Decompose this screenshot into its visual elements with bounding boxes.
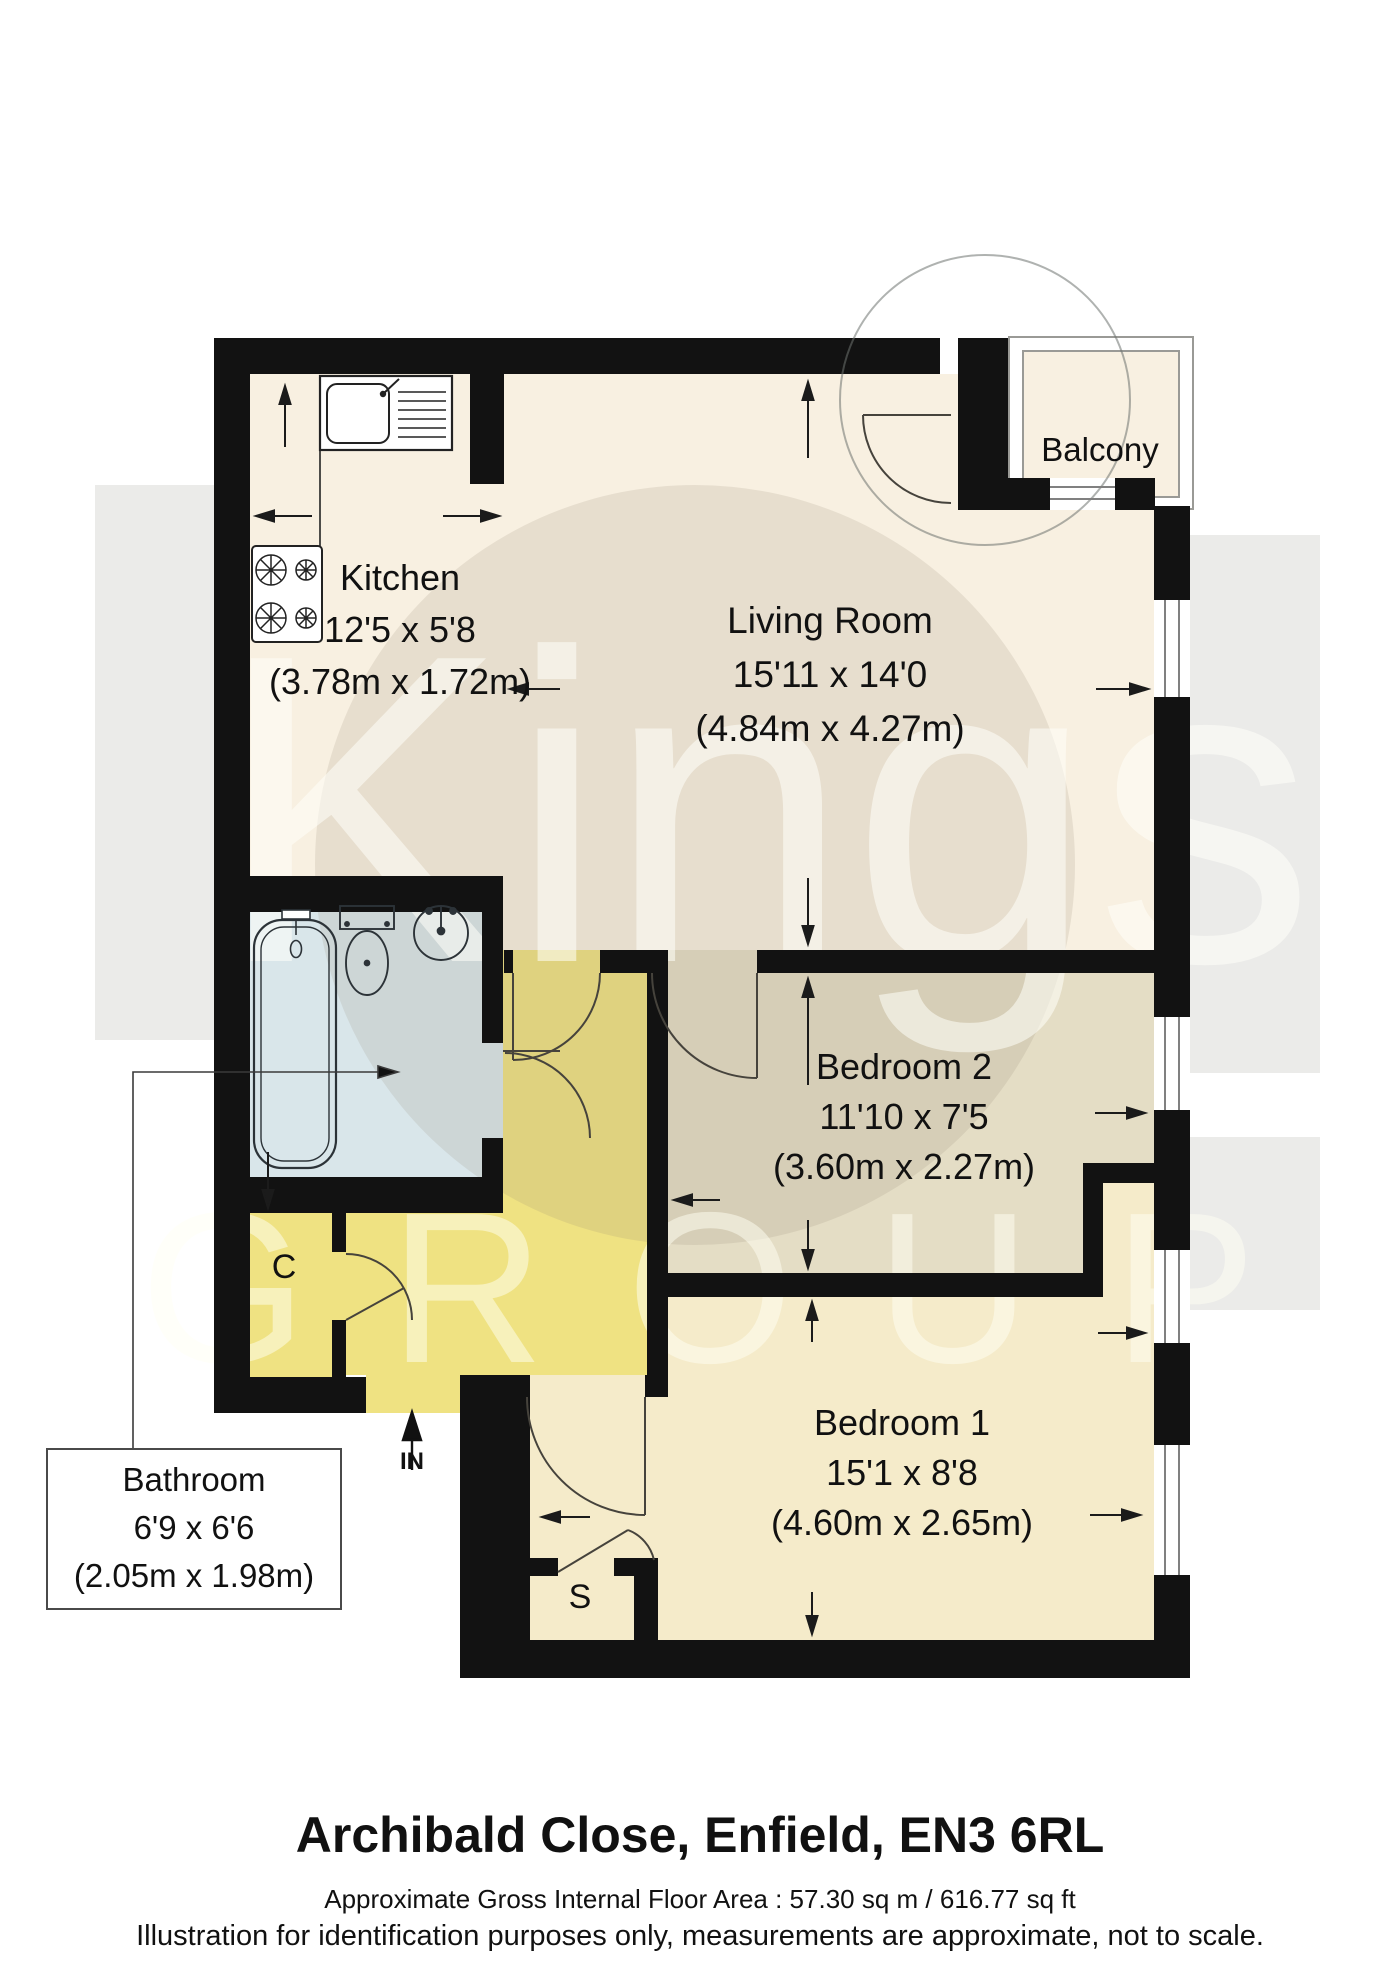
bedroom2-name: Bedroom 2: [706, 1042, 1102, 1092]
balcony-label: Balcony: [1014, 431, 1186, 469]
watermark-band-right-upper: [1190, 535, 1320, 1073]
window-balcony: [1050, 478, 1115, 510]
bedroom1-size-imperial: 15'1 x 8'8: [704, 1448, 1100, 1498]
wall-bathroom-bottom: [214, 1177, 503, 1213]
window-bedroom2: [1154, 1017, 1190, 1110]
wall-closet-right-upper: [332, 1213, 346, 1252]
store-label: S: [558, 1578, 602, 1617]
closet-label: C: [262, 1248, 306, 1287]
wall-living-bottom-a: [504, 950, 513, 973]
disclaimer-note: Illustration for identification purposes…: [0, 1920, 1400, 1953]
wall-living-bottom-c: [757, 950, 1154, 973]
closet-doorway-floor: [332, 1252, 346, 1320]
wall-closet-bottom: [214, 1377, 366, 1413]
entrance-label: IN: [390, 1448, 434, 1476]
wall-closet-right-lower: [332, 1320, 346, 1377]
living-size-metric: (4.84m x 4.27m): [630, 702, 1030, 756]
wall-bathroom-right-upper: [482, 876, 503, 1043]
kitchen-size-metric: (3.78m x 1.72m): [200, 656, 600, 708]
living-name: Living Room: [630, 594, 1030, 648]
wall-lowerleft-block: [460, 1375, 530, 1678]
wall-living-bottom-b: [600, 950, 652, 973]
wall-balcony-pier: [958, 338, 1008, 510]
bedroom2-size-imperial: 11'10 x 7'5: [706, 1092, 1102, 1142]
balcony-floor: [1022, 350, 1180, 498]
entrance-doorway-floor: [366, 1375, 460, 1413]
bathroom-size-imperial: 6'9 x 6'6: [48, 1504, 340, 1552]
watermark-band-left: [95, 485, 214, 1040]
bedroom1-doorway-floor: [530, 1375, 645, 1397]
address-title: Archibald Close, Enfield, EN3 6RL: [0, 1806, 1400, 1864]
wall-store-right: [634, 1558, 658, 1640]
wall-divider-jog: [1083, 1183, 1103, 1297]
wall-kitchen-stub: [470, 374, 504, 484]
living-room-label: Living Room 15'11 x 14'0 (4.84m x 4.27m): [630, 594, 1030, 756]
window-bedroom1-upper: [1154, 1250, 1190, 1343]
wall-kitchen-bathroom: [214, 876, 503, 912]
hall-floor-lower: [346, 1213, 503, 1375]
bedroom1-floor-upper: [668, 1297, 1154, 1397]
kitchen-size-imperial: 12'5 x 5'8: [200, 604, 600, 656]
bathroom-callout-box: Bathroom 6'9 x 6'6 (2.05m x 1.98m): [46, 1448, 342, 1610]
wall-store-top-a: [530, 1558, 558, 1576]
bedroom1-label: Bedroom 1 15'1 x 8'8 (4.60m x 2.65m): [704, 1398, 1100, 1548]
bathroom-name: Bathroom: [48, 1456, 340, 1504]
kitchen-name: Kitchen: [200, 552, 600, 604]
bedroom1-size-metric: (4.60m x 2.65m): [704, 1498, 1100, 1548]
bathroom-size-metric: (2.05m x 1.98m): [48, 1552, 340, 1600]
wall-bottom: [460, 1640, 1190, 1678]
bedroom2-label: Bedroom 2 11'10 x 7'5 (3.60m x 2.27m): [706, 1042, 1102, 1192]
bedroom1-name: Bedroom 1: [704, 1398, 1100, 1448]
wall-bedroom1-top-stub: [645, 1375, 668, 1397]
window-bedroom1-lower: [1154, 1445, 1190, 1575]
closet-floor: [250, 1213, 332, 1377]
wall-top: [214, 338, 940, 374]
living-size-imperial: 15'11 x 14'0: [630, 648, 1030, 702]
wall-bedroom-divider: [647, 1273, 1103, 1297]
bedroom1-floor-nook: [1103, 1183, 1154, 1297]
wall-bedroom2-left: [647, 950, 668, 1397]
bedroom2-size-metric: (3.60m x 2.27m): [706, 1142, 1102, 1192]
watermark-band-right-lower: [1190, 1137, 1320, 1310]
window-living: [1154, 600, 1190, 697]
kitchen-label: Kitchen 12'5 x 5'8 (3.78m x 1.72m): [200, 552, 600, 708]
floor-area-note: Approximate Gross Internal Floor Area : …: [0, 1884, 1400, 1915]
floorplan-page: Kings GROUP: [0, 0, 1400, 1979]
